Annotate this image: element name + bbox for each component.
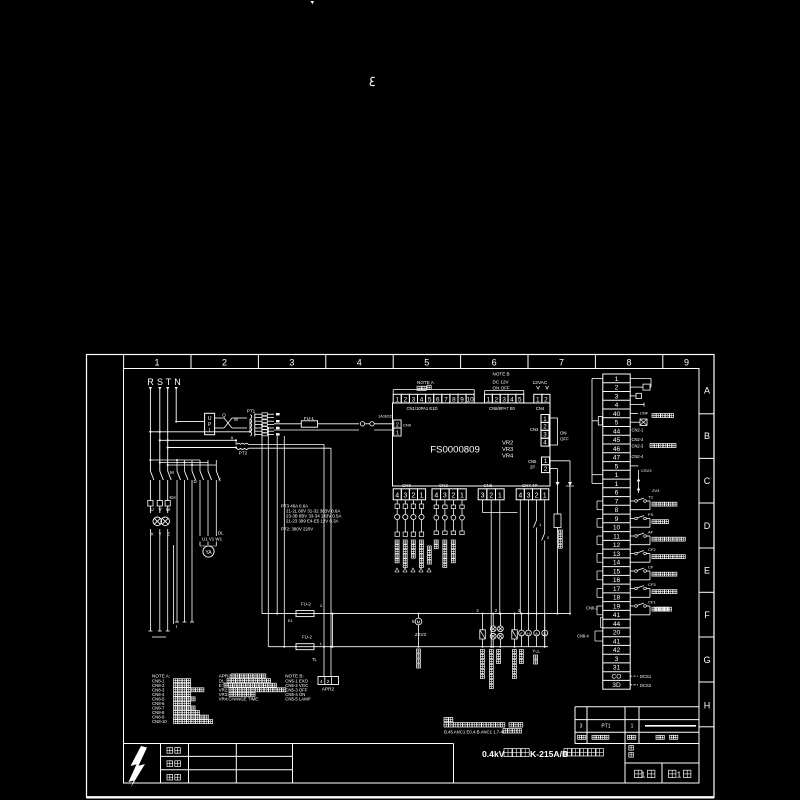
- svg-text:1: 1: [498, 492, 502, 499]
- svg-text:W: W: [166, 507, 171, 512]
- svg-text:1: 1: [631, 724, 634, 730]
- svg-text:VR3: VR3: [502, 447, 513, 453]
- svg-text:U: U: [150, 507, 153, 512]
- svg-text:42: 42: [613, 647, 621, 654]
- svg-text:16: 16: [613, 577, 621, 584]
- svg-text:9: 9: [615, 516, 619, 523]
- svg-text:ZV3: ZV3: [652, 488, 660, 493]
- svg-text:4: 4: [395, 492, 399, 499]
- svg-text:2: 2: [535, 492, 539, 499]
- svg-text:7: 7: [444, 396, 448, 403]
- svg-text:PT1: PT1: [601, 724, 610, 730]
- svg-text:3: 3: [403, 492, 407, 499]
- svg-text:NOTE A: NOTE A: [417, 380, 435, 385]
- svg-text:Q: Q: [222, 413, 226, 418]
- svg-text:DCS2: DCS2: [640, 683, 652, 688]
- svg-text:CN3: CN3: [439, 483, 448, 488]
- svg-text:CN2-1: CN2-1: [632, 428, 645, 433]
- svg-text:PT2: 380V 220V: PT2: 380V 220V: [281, 527, 313, 532]
- svg-text:CF2: CF2: [648, 547, 656, 552]
- svg-text:PT1: PT1: [247, 409, 256, 414]
- svg-text:G: G: [703, 655, 710, 665]
- svg-text:CN8: CN8: [402, 483, 411, 488]
- svg-text:9: 9: [684, 358, 689, 368]
- svg-text:TC: TC: [648, 495, 653, 500]
- svg-text:CSV3: CSV3: [641, 468, 652, 473]
- svg-text:CN4: CN4: [536, 406, 545, 411]
- svg-text:1: 1: [395, 396, 399, 403]
- svg-text:3: 3: [526, 492, 530, 499]
- svg-text:NOTE B: NOTE B: [493, 372, 510, 377]
- svg-text:M: M: [234, 417, 238, 422]
- svg-text:13: 13: [613, 551, 621, 558]
- svg-text:C: C: [704, 476, 711, 486]
- svg-text:CN1/10PA1 E1D: CN1/10PA1 E1D: [406, 406, 437, 411]
- svg-text:12: 12: [613, 542, 621, 549]
- svg-text:Y-△: Y-△: [532, 649, 540, 654]
- svg-text:1: 1: [536, 396, 540, 403]
- svg-text:44: 44: [613, 621, 621, 628]
- svg-text:2: 2: [451, 492, 455, 499]
- svg-text:10: 10: [613, 525, 621, 532]
- svg-text:1A1B1D: 1A1B1D: [378, 414, 393, 419]
- svg-text:TL: TL: [312, 657, 318, 662]
- svg-text:4: 4: [357, 358, 362, 368]
- svg-text:4: 4: [543, 440, 547, 447]
- svg-text:8: 8: [615, 507, 619, 514]
- svg-text:1: 1: [396, 431, 399, 437]
- svg-text:3: 3: [443, 492, 447, 499]
- svg-text:E: E: [704, 566, 710, 576]
- svg-text:1: 1: [615, 481, 619, 488]
- svg-text:8: 8: [626, 358, 631, 368]
- svg-text:19: 19: [613, 603, 621, 610]
- svg-text:3: 3: [481, 492, 485, 499]
- svg-text:CN8/6PA7 E0: CN8/6PA7 E0: [489, 406, 515, 411]
- svg-text:11: 11: [613, 533, 620, 540]
- svg-text:4: 4: [320, 679, 323, 684]
- svg-text:8: 8: [452, 396, 456, 403]
- svg-text:4: 4: [420, 396, 424, 403]
- svg-text:X: X: [230, 436, 233, 441]
- svg-text:3: 3: [543, 432, 547, 439]
- svg-text:D: D: [704, 521, 711, 531]
- svg-text:4: 4: [518, 492, 522, 499]
- svg-text:1: 1: [487, 396, 491, 403]
- svg-text:9: 9: [460, 396, 464, 403]
- svg-text:1: 1: [543, 492, 547, 499]
- svg-text:3: 3: [289, 358, 294, 368]
- svg-text:0.4kV: 0.4kV: [482, 749, 505, 759]
- svg-text:4: 4: [615, 402, 619, 409]
- svg-text:FS: FS: [648, 512, 653, 517]
- svg-text:12VAC: 12VAC: [533, 380, 548, 386]
- svg-text:14: 14: [613, 560, 621, 567]
- svg-text:CF: CF: [648, 565, 654, 570]
- svg-text:3D: 3D: [612, 682, 621, 689]
- svg-text:CN6: CN6: [484, 483, 493, 488]
- svg-text:VR4:CHANGE TIME: VR4:CHANGE TIME: [219, 697, 258, 702]
- svg-text:T: T: [166, 377, 172, 387]
- svg-text:OFF: OFF: [560, 437, 569, 442]
- svg-text:CN5: CN5: [528, 459, 537, 464]
- svg-text:1: 1: [543, 416, 547, 423]
- svg-text:R: R: [147, 377, 154, 387]
- svg-text:S: S: [157, 377, 163, 387]
- svg-text:H: H: [527, 632, 530, 636]
- svg-text:47: 47: [613, 455, 621, 462]
- svg-text:CN3: CN3: [530, 427, 539, 432]
- svg-text:DC 12V: DC 12V: [493, 380, 510, 385]
- svg-text:VR4: VR4: [502, 453, 514, 459]
- svg-text:FS0000809: FS0000809: [430, 444, 480, 455]
- svg-text:U1 V1 W1: U1 V1 W1: [202, 537, 223, 542]
- svg-text:2: 2: [543, 424, 547, 431]
- svg-text:40: 40: [613, 411, 621, 418]
- svg-text:CN8-2: CN8-2: [586, 606, 599, 611]
- svg-text:7: 7: [615, 498, 619, 505]
- svg-text:41: 41: [613, 638, 621, 645]
- svg-text:DL: DL: [218, 531, 224, 536]
- svg-text:X: X: [150, 532, 153, 537]
- svg-text:4: 4: [510, 396, 514, 403]
- svg-text:CF3: CF3: [648, 582, 656, 587]
- svg-text:ON: ON: [560, 431, 567, 436]
- svg-text:B: B: [704, 431, 710, 441]
- svg-text:3: 3: [502, 396, 506, 403]
- svg-text:2: 2: [494, 396, 498, 403]
- svg-text:5: 5: [518, 396, 522, 403]
- svg-text:CN2-2: CN2-2: [632, 437, 645, 442]
- svg-text:PT2: PT2: [239, 451, 248, 456]
- svg-text:2: 2: [404, 396, 408, 403]
- svg-text:AF: AF: [648, 530, 654, 535]
- svg-text:M: M: [170, 470, 174, 475]
- svg-text:2: 2: [327, 679, 330, 684]
- svg-text:APR2: APR2: [322, 687, 335, 693]
- svg-text:45: 45: [613, 437, 621, 444]
- svg-text:FU-2: FU-2: [301, 602, 311, 607]
- svg-text:F: F: [704, 610, 710, 620]
- svg-text:7: 7: [559, 358, 564, 368]
- svg-text:46: 46: [613, 446, 621, 453]
- svg-text:H: H: [704, 701, 711, 711]
- svg-text:2: 2: [544, 396, 548, 403]
- svg-text:1: 1: [420, 492, 424, 499]
- svg-text:2: 2: [396, 423, 399, 429]
- svg-text:FU-2: FU-2: [302, 635, 312, 640]
- svg-text:1: 1: [677, 770, 682, 780]
- svg-text:VR2: VR2: [502, 440, 513, 446]
- svg-text:CN5-5 LAMP: CN5-5 LAMP: [285, 697, 310, 702]
- svg-text:5: 5: [428, 396, 432, 403]
- svg-text:1: 1: [641, 770, 646, 780]
- svg-text:CN2-4: CN2-4: [632, 454, 645, 459]
- svg-text:CNF: CNF: [640, 410, 649, 415]
- svg-text:I: I: [176, 624, 177, 629]
- svg-text:6: 6: [436, 396, 440, 403]
- svg-text:2P: 2P: [530, 465, 535, 470]
- svg-text:20: 20: [613, 630, 621, 637]
- svg-text:31: 31: [613, 665, 621, 672]
- svg-text:3: 3: [580, 724, 583, 730]
- svg-text:3: 3: [615, 656, 619, 663]
- svg-text:1: 1: [154, 358, 159, 368]
- svg-text:18: 18: [613, 595, 621, 602]
- svg-text:21-23 399 E4-E5 12V 0.3A: 21-23 399 E4-E5 12V 0.3A: [286, 519, 339, 524]
- svg-text:KH: KH: [170, 495, 176, 500]
- svg-text:DCS1: DCS1: [640, 674, 652, 679]
- svg-text:6: 6: [492, 358, 497, 368]
- svg-text:A: A: [704, 386, 710, 396]
- svg-text:5: 5: [424, 358, 429, 368]
- svg-text:CO: CO: [612, 674, 622, 681]
- svg-text:1: 1: [460, 492, 464, 499]
- svg-text:K-215A/B: K-215A/B: [530, 749, 568, 759]
- svg-text:1: 1: [615, 472, 619, 479]
- svg-text:N: N: [174, 377, 181, 387]
- svg-text:E1: E1: [288, 618, 294, 623]
- svg-text:17: 17: [613, 586, 621, 593]
- svg-text:3: 3: [615, 393, 619, 400]
- svg-text:15: 15: [613, 568, 621, 575]
- svg-text:CN2-3: CN2-3: [632, 443, 645, 448]
- svg-text:5: 5: [615, 463, 619, 470]
- svg-text:CN8-10: CN8-10: [152, 719, 167, 724]
- svg-text:10: 10: [467, 396, 475, 403]
- svg-text:1: 1: [615, 376, 619, 383]
- svg-text:ON OFF: ON OFF: [493, 385, 511, 390]
- svg-text:YA: YA: [205, 550, 212, 556]
- svg-text:4: 4: [434, 492, 438, 499]
- svg-text:F: F: [219, 478, 222, 483]
- svg-text:CN8-4: CN8-4: [577, 634, 590, 639]
- svg-text:CF1: CF1: [648, 600, 656, 605]
- svg-text:5: 5: [615, 420, 619, 427]
- svg-text:44: 44: [613, 428, 621, 435]
- svg-text:2: 2: [489, 492, 493, 499]
- svg-text:6: 6: [615, 490, 619, 497]
- svg-text:B.45 ANC1 E0.4-B ANC1 1.7-4: B.45 ANC1 E0.4-B ANC1 1.7-4L: [444, 729, 506, 734]
- svg-text:41: 41: [613, 612, 621, 619]
- svg-text:I: I: [209, 428, 210, 434]
- svg-text:3: 3: [412, 396, 416, 403]
- svg-text:M: M: [417, 620, 421, 625]
- svg-text:FU-1: FU-1: [304, 416, 315, 421]
- svg-text:2: 2: [411, 492, 415, 499]
- svg-text:CN9: CN9: [403, 422, 412, 427]
- svg-text:6: 6: [412, 619, 415, 624]
- svg-text:2: 2: [615, 385, 619, 392]
- svg-text:CN7 4P: CN7 4P: [522, 483, 537, 488]
- svg-text:ZSV3: ZSV3: [415, 632, 427, 637]
- svg-text:2: 2: [222, 358, 227, 368]
